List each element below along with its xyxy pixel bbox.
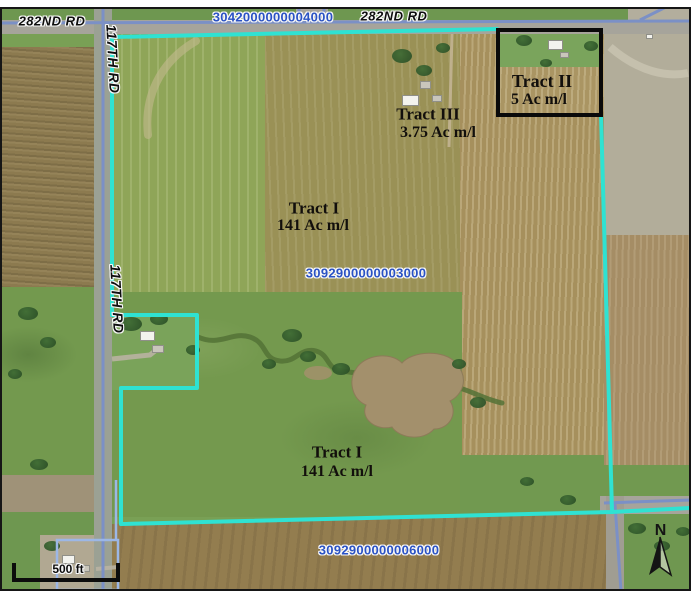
margin-bottom <box>0 591 698 601</box>
tract1-lower-name-label: Tract I <box>312 444 362 461</box>
tract3-acres-label: 3.75 Ac m/l <box>400 125 476 141</box>
scale-bar-tick-right <box>116 563 120 582</box>
parcel-label-south: 3092900000006000 <box>319 544 439 557</box>
road-label-282nd-right: 282ND RD <box>361 10 428 23</box>
tract1-upper-name-label: Tract I <box>289 200 339 217</box>
tract3-name-label: Tract III <box>396 106 459 123</box>
tract1-boundary-north <box>112 29 497 37</box>
parcel-label-central: 3092900000003000 <box>306 267 426 280</box>
margin-right <box>691 7 698 591</box>
tract2-name-label: Tract II <box>512 72 572 90</box>
road-line-southeast <box>604 500 691 503</box>
tract1-boundary-notch <box>112 315 197 524</box>
tract1-lower-acres-label: 141 Ac m/l <box>301 464 373 480</box>
margin-top <box>0 0 698 7</box>
road-label-117th-top: 117TH RD <box>104 24 122 94</box>
road-line-northeast <box>640 7 666 20</box>
scale-bar <box>12 578 120 582</box>
tract2-acres-label: 5 Ac m/l <box>511 92 567 108</box>
scale-bar-label: 500 ft <box>52 563 83 575</box>
parcel-label-north: 3042000000004000 <box>213 11 333 24</box>
road-label-282nd-left: 282ND RD <box>19 15 86 28</box>
north-arrow-icon <box>646 533 676 581</box>
aerial-plat-map: 282ND RD 3042000000004000 282ND RD 117TH… <box>0 0 698 601</box>
aerial-imagery: 282ND RD 3042000000004000 282ND RD 117TH… <box>0 7 691 591</box>
tract1-boundary-east <box>601 114 612 512</box>
scale-bar-tick-left <box>12 563 16 582</box>
road-line-south <box>615 504 621 591</box>
road-label-117th-mid: 117TH RD <box>108 264 126 334</box>
tract1-boundary-south <box>121 508 690 524</box>
tract1-upper-acres-label: 141 Ac m/l <box>277 218 349 234</box>
